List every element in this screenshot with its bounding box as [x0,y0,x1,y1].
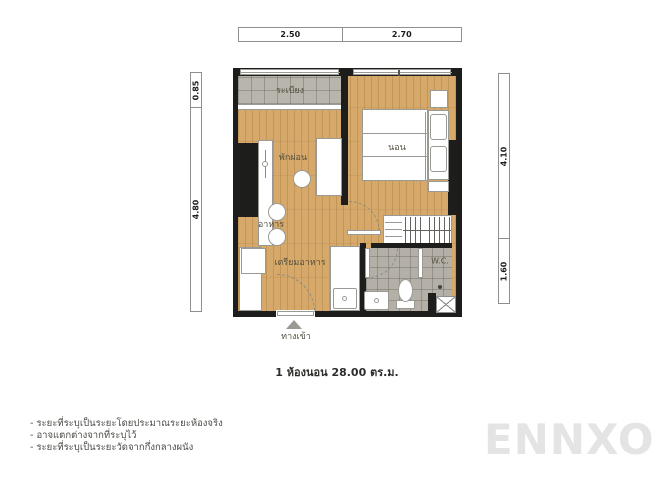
ac-compressor-box [436,296,456,313]
footnote-line: - ระยะที่ระบุเป็นระยะวัดจากกึ่งกลางผนัง [30,442,223,454]
wardrobe-rail [403,230,451,231]
pillow [430,146,447,172]
floor-drain [438,285,442,289]
footnote-line: - อาจแตกต่างจากที่ระบุไว้ [30,430,223,442]
bathroom-door-leaf [365,248,370,278]
nightstand-bottom [428,181,449,192]
living-stool [293,170,311,188]
bathroom-sink-drain [374,298,379,303]
column-right [448,140,462,215]
wardrobe-shelves [385,217,402,244]
toilet-bowl [398,279,413,302]
label-wc: W.C. [431,257,449,266]
balcony-window [240,69,339,75]
wardrobe [383,215,452,246]
label-bedroom: นอน [388,140,406,154]
entrance-arrow-icon [286,320,302,329]
ennxo-logo: ENNXO [484,419,655,461]
label-balcony: ระเบียง [276,83,304,97]
column-left [234,143,258,217]
balcony-sliding-door [238,104,341,110]
pillow [430,114,447,140]
floor-lamp-head [262,161,268,167]
wc-partition [418,248,423,278]
label-dining: อาหาร [258,217,284,231]
plan-caption: 1 ห้องนอน 28.00 ตร.ม. [275,363,398,381]
fridge-cabinet [241,248,266,274]
wall-bathroom-stub [428,293,436,313]
blanket-edge [425,112,426,180]
floor-plan: ระเบียง พักผ่อน นอน อาหาร เตรียมอาหาร W.… [0,0,670,482]
window-mullion [398,70,400,76]
footnotes: - ระยะที่ระบุเป็นระยะโดยประมาณระยะห้องจร… [30,418,223,454]
label-kitchen: เตรียมอาหาร [274,255,325,269]
floor-plan-page: 2.50 2.70 0.85 4.80 4.10 1.60 [0,0,670,482]
nightstand-top [430,90,448,108]
window-line [354,72,452,73]
label-entrance: ทางเข้า [281,329,311,343]
window-line [241,72,340,73]
blanket-fold [363,156,429,157]
kitchen-sink-drain [342,296,347,301]
bedroom-window [353,69,451,75]
blanket-fold [363,133,429,134]
label-living: พักผ่อน [279,150,307,164]
footnote-line: - ระยะที่ระบุเป็นระยะโดยประมาณระยะห้องจร… [30,418,223,430]
tv-bench [316,138,342,196]
bedroom-door-leaf [347,230,381,235]
wall-divider-bedroom [341,68,348,205]
